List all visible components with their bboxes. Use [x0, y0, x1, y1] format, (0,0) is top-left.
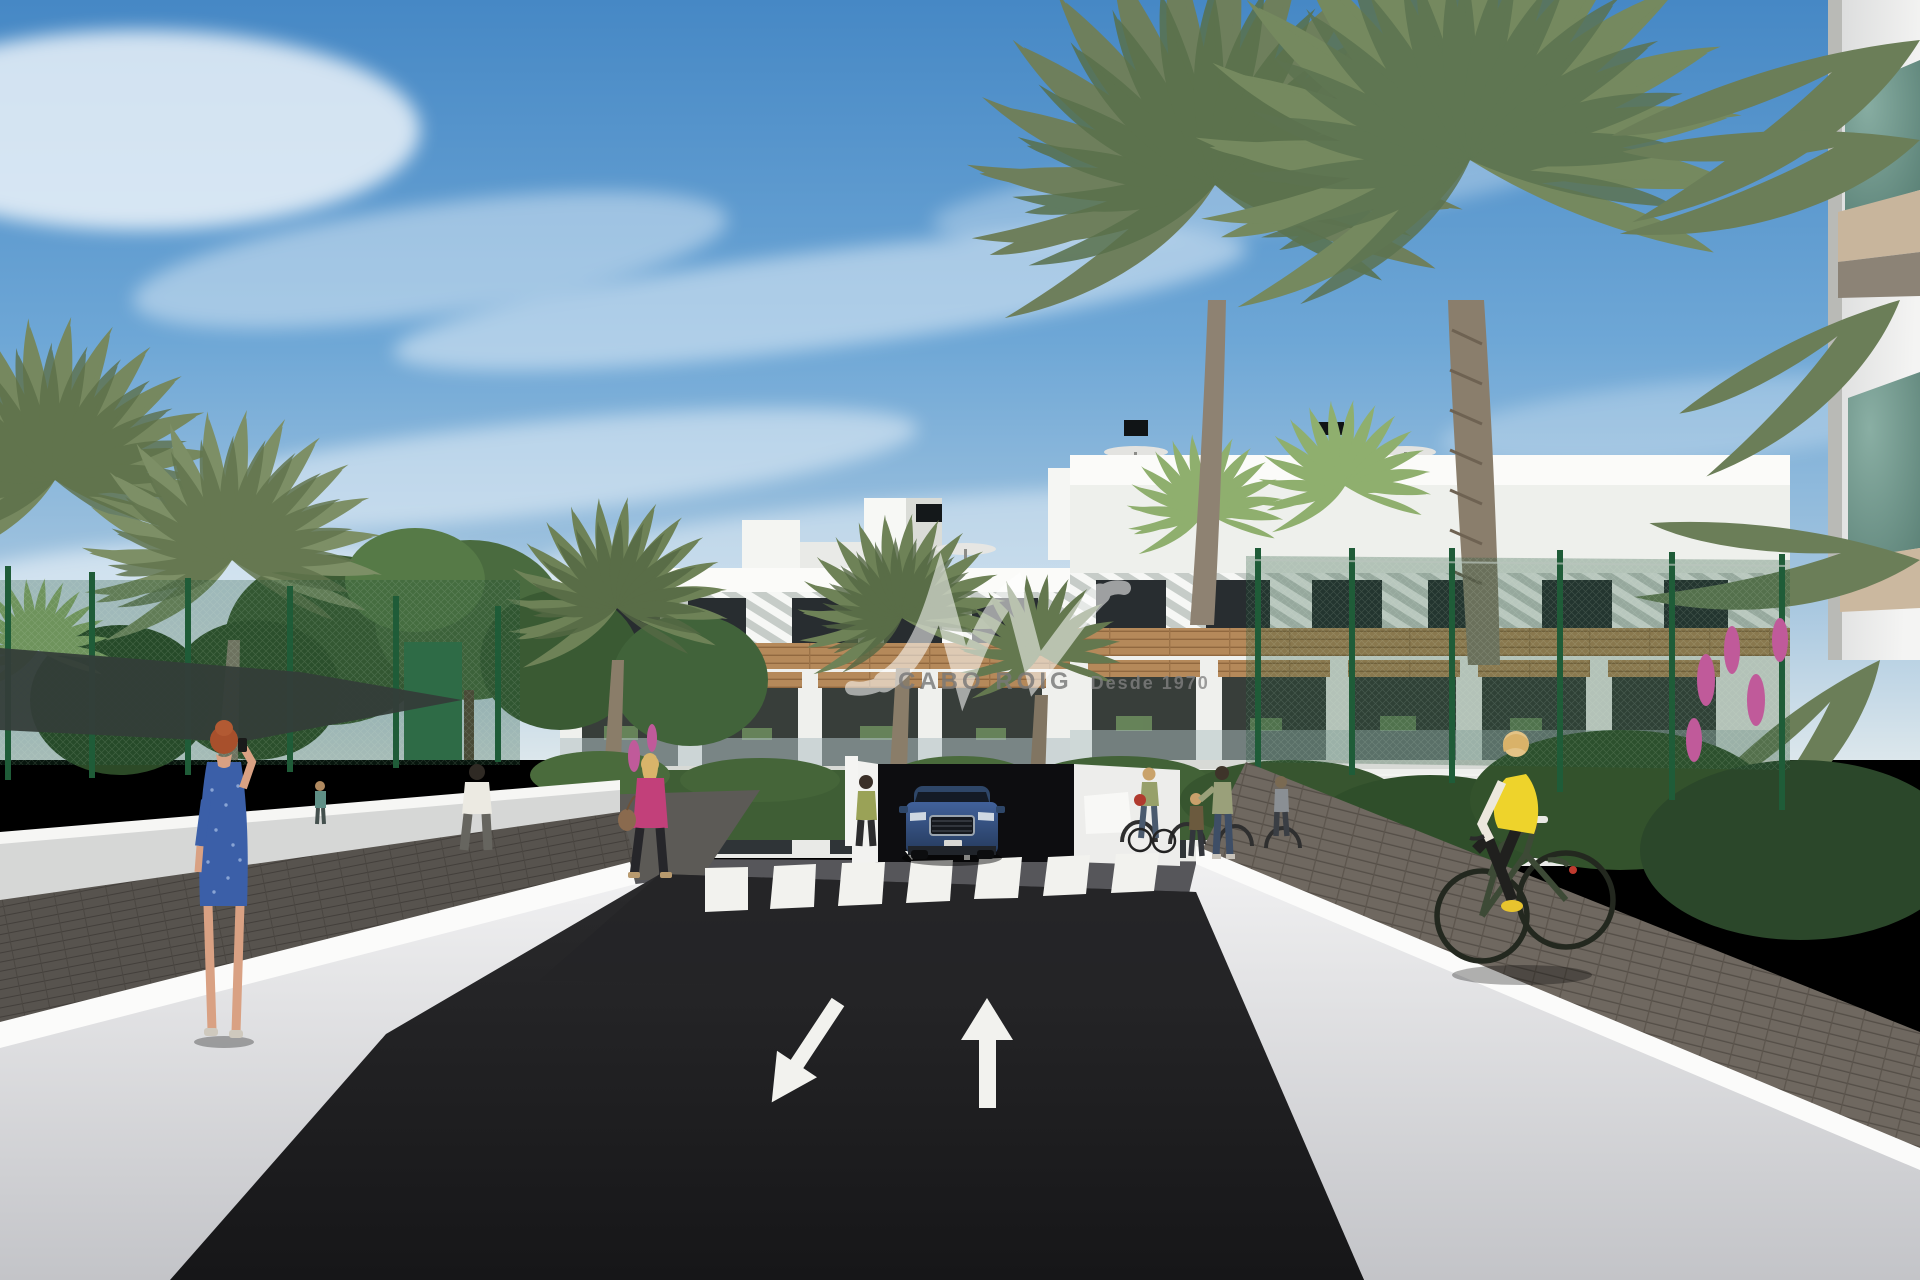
arm-raised: [243, 748, 252, 788]
bike-reflector: [1569, 866, 1577, 874]
yellow-shoe: [1501, 900, 1523, 912]
crosswalk-stripe: [1043, 855, 1090, 896]
car-headlight: [910, 812, 926, 821]
red-bag: [1134, 794, 1146, 806]
crosswalk-stripe: [705, 867, 748, 912]
handbag: [618, 809, 636, 831]
crosswalk-stripe: [838, 862, 885, 906]
crosswalk-stripe: [770, 864, 816, 909]
car-headlight: [978, 812, 994, 821]
crosswalk-stripe: [906, 860, 953, 903]
pink-jacket: [633, 778, 668, 828]
suv: [899, 786, 1005, 866]
architectural-rendering: CABO ROIG Desde 1970: [0, 0, 1920, 1280]
sleeve: [200, 800, 206, 846]
olive-top: [856, 791, 877, 820]
white-tshirt: [462, 782, 492, 814]
road-upper-band: [540, 874, 1240, 996]
car-mirror: [996, 806, 1005, 813]
left-fence: [0, 566, 520, 780]
car-wheel: [977, 850, 994, 859]
car-wheel: [911, 850, 928, 859]
car-mirror: [899, 806, 908, 813]
pillar: [845, 756, 858, 846]
phone: [238, 738, 247, 752]
balcony-glass-panel: [1848, 372, 1920, 560]
crosswalk-stripe: [1111, 853, 1159, 893]
